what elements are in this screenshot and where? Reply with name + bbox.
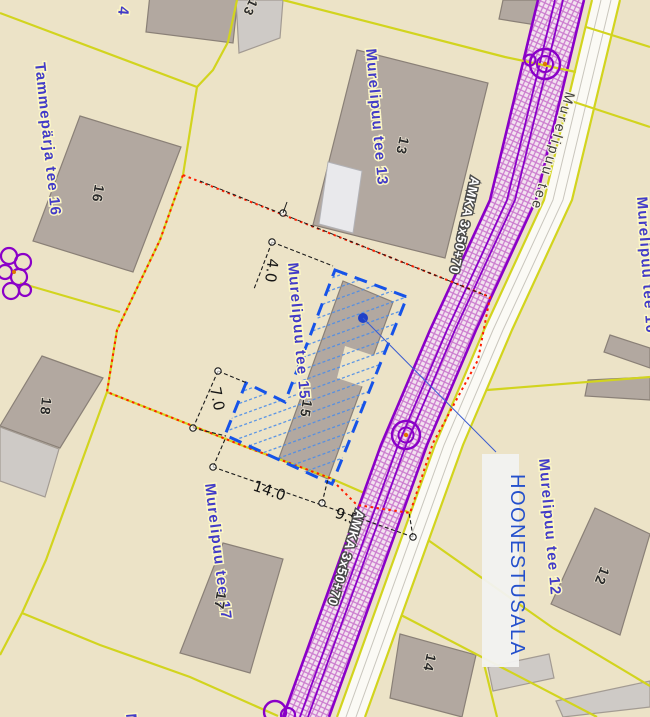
dimension-point xyxy=(269,239,275,245)
dimension-point xyxy=(319,500,325,506)
house-number-16: 16 xyxy=(89,183,108,204)
address-partial-top: 4 xyxy=(114,6,132,17)
house-number-17: 17 xyxy=(211,590,230,611)
house-number-15: 15 xyxy=(297,398,316,419)
dimension-point xyxy=(410,534,416,540)
detail-plan-map[interactable]: 4.0 7.0 14.0 9.5 HOONESTUSALA Murelipuu … xyxy=(0,0,650,717)
map-canvas[interactable]: 4.0 7.0 14.0 9.5 HOONESTUSALA Murelipuu … xyxy=(0,0,650,717)
dimension-point xyxy=(190,425,196,431)
dimension-point xyxy=(210,464,216,470)
house-number-18: 18 xyxy=(37,397,55,417)
hoonestusala-label: HOONESTUSALA xyxy=(506,474,528,656)
dimension-label-4: 4.0 xyxy=(261,258,282,284)
address-partial-bottom: M xyxy=(122,713,140,717)
dimension-point xyxy=(215,368,221,374)
